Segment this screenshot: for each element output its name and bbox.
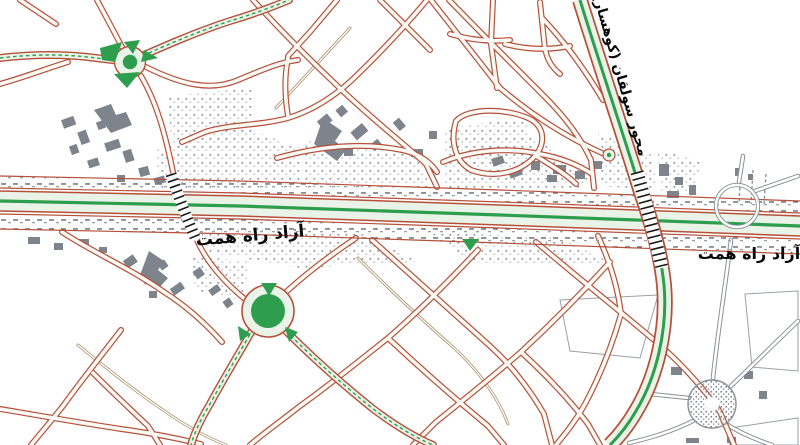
gray-roundabout	[688, 380, 736, 428]
mini-roundabout	[603, 149, 615, 161]
freeway-right-label: آزاد راه همت	[698, 243, 800, 263]
map-canvas: آزاد راه همت آزاد راه همت محور سولقان (ک…	[0, 0, 800, 445]
map-svg: آزاد راه همت آزاد راه همت محور سولقان (ک…	[0, 0, 800, 445]
